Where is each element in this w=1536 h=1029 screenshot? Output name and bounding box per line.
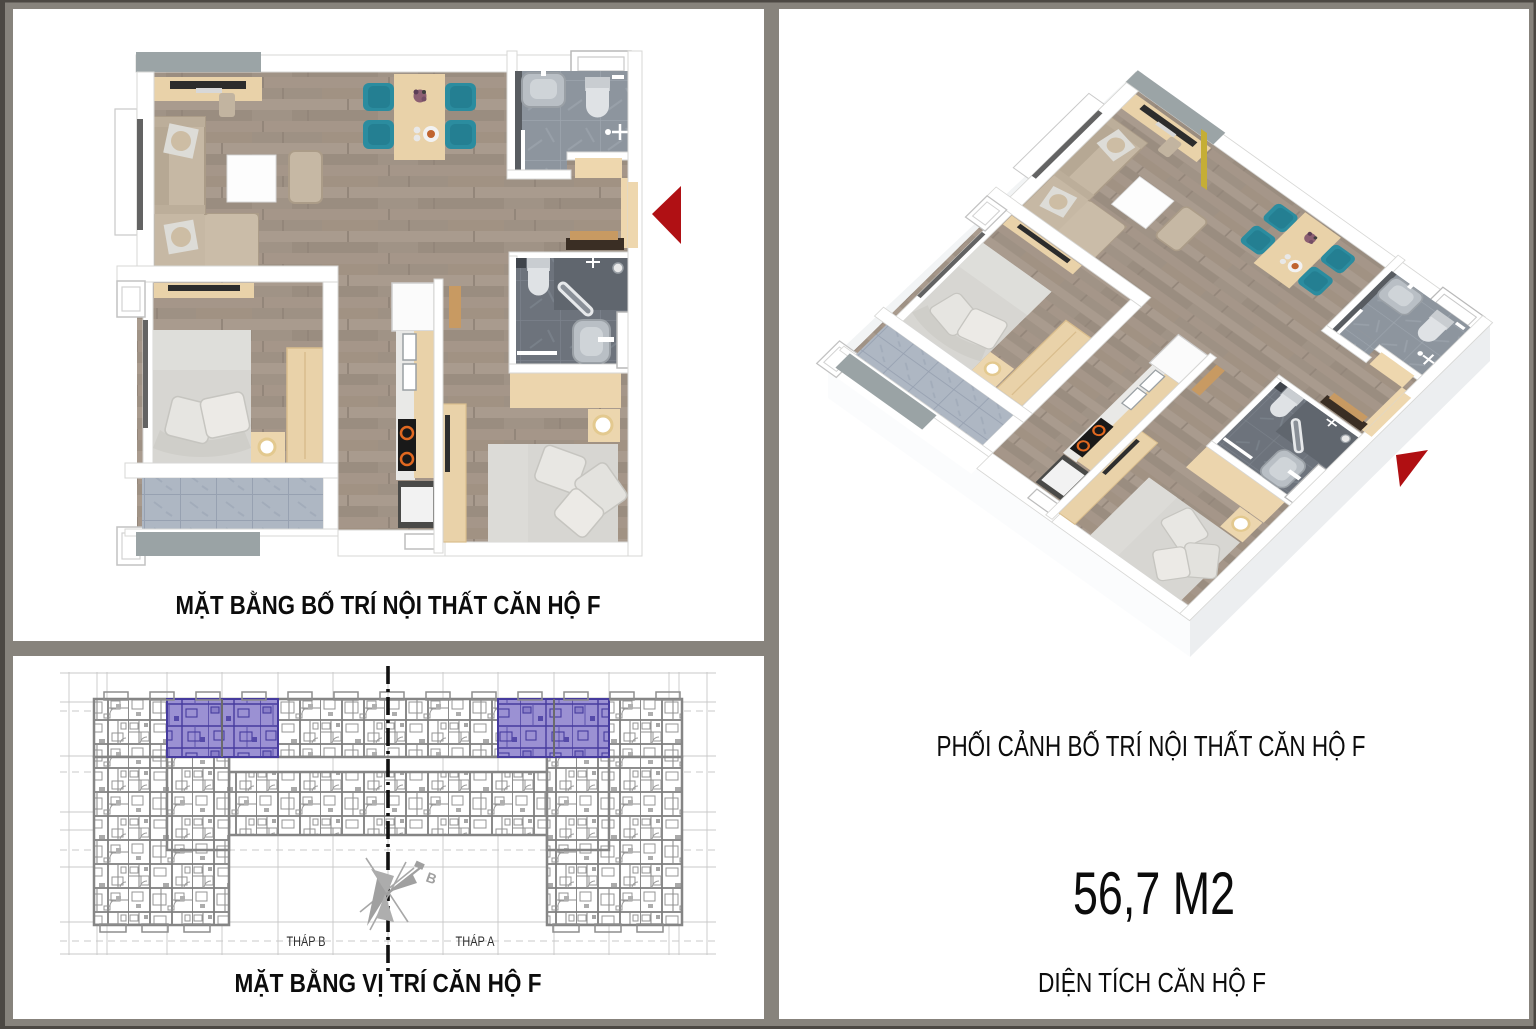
svg-text:56,7 M2: 56,7 M2 — [1073, 860, 1235, 927]
svg-text:PHỐI CẢNH BỐ TRÍ NỘI THẤT CĂN: PHỐI CẢNH BỐ TRÍ NỘI THẤT CĂN HỘ F — [937, 729, 1366, 763]
svg-text:MẶT BẰNG VỊ TRÍ CĂN HỘ F: MẶT BẰNG VỊ TRÍ CĂN HỘ F — [235, 968, 542, 998]
svg-text:DIỆN TÍCH CĂN HỘ F: DIỆN TÍCH CĂN HỘ F — [1038, 967, 1266, 998]
svg-text:THÁP A: THÁP A — [456, 933, 496, 949]
svg-text:MẶT BẰNG BỐ TRÍ NỘI THẤT CĂN H: MẶT BẰNG BỐ TRÍ NỘI THẤT CĂN HỘ F — [176, 590, 601, 620]
svg-text:THÁP B: THÁP B — [287, 933, 326, 949]
